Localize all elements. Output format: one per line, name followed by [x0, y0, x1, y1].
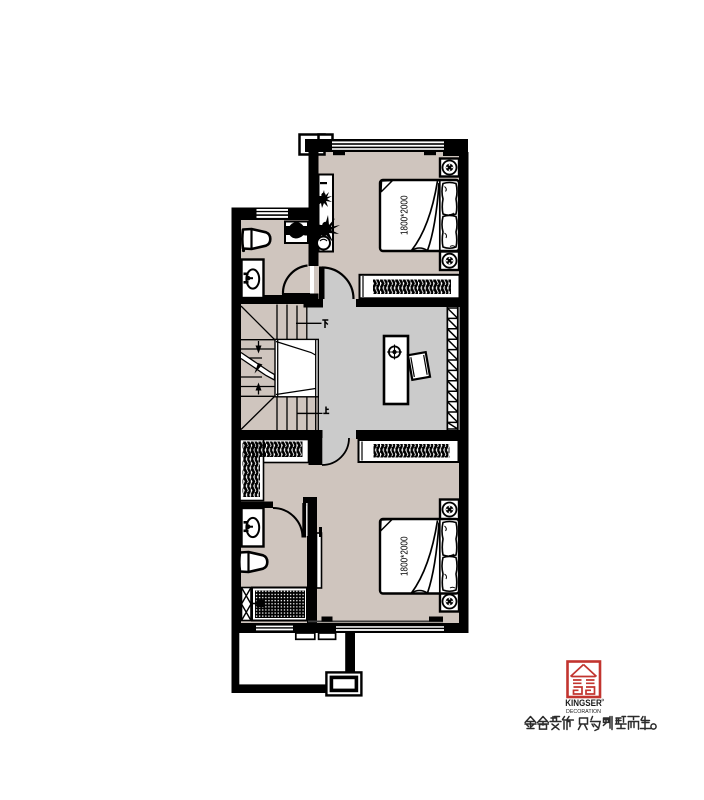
svg-text:DECORATION: DECORATION: [566, 709, 601, 715]
svg-text:1800*2000: 1800*2000: [399, 195, 411, 235]
svg-text:1800*2000: 1800*2000: [399, 536, 411, 576]
svg-text:KINGSER: KINGSER: [565, 698, 602, 708]
